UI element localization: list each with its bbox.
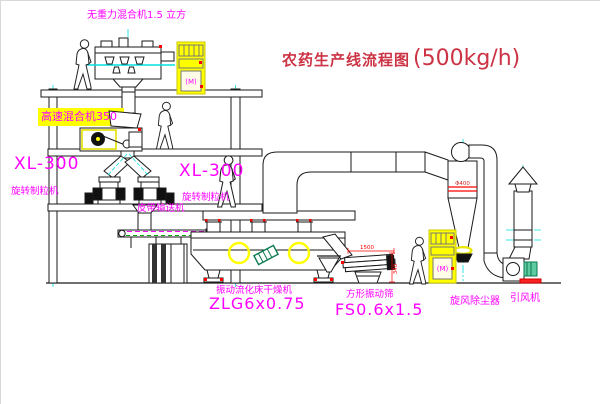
- conveyor-support-frame: [149, 244, 187, 283]
- gravity-free-mixer: [87, 38, 175, 113]
- sieve-height-dim-text: 340: [393, 263, 399, 274]
- exhaust-duct: [263, 152, 448, 213]
- control-cabinet-top: (M): [177, 42, 205, 94]
- cyclone-inlet-taper: [425, 152, 448, 180]
- fan-outlet-transition: [509, 247, 531, 259]
- sieve-length-dim-text: 1500: [360, 245, 374, 251]
- top-slab: [41, 90, 262, 97]
- label-granulator-left-model: XL-300: [14, 156, 79, 173]
- control-cabinet-right: (M): [429, 230, 456, 283]
- cyclone-top-elbow: [452, 143, 471, 162]
- induced-draft-fan: [503, 258, 541, 283]
- granulator-right: [134, 182, 174, 204]
- person-near-sieve: [409, 237, 425, 284]
- person-mid-floor: [156, 102, 172, 149]
- cyclone-discharge-valve: [454, 254, 472, 262]
- label-gravity-free-mixer: 无重力混合机1.5 立方: [87, 11, 186, 21]
- fan-base: [520, 279, 541, 283]
- label-sieve-model: FS0.6x1.5: [335, 302, 423, 318]
- label-sieve-name: 方形振动筛: [346, 290, 394, 300]
- drawing-title: 农药生产线流程图 (500kg/h): [282, 46, 520, 71]
- granulator-left: [85, 182, 125, 204]
- label-cyclone: 旋风除尘器: [450, 297, 500, 307]
- stack-cap-arrow: [509, 167, 537, 184]
- label-belt-conveyor: 皮带输送机: [137, 204, 185, 214]
- cyclone-diameter-text: Φ400: [455, 181, 470, 187]
- drawing-canvas: (M): [0, 0, 600, 404]
- cyclone-discharge-ring: [455, 247, 472, 254]
- title-chinese: 农药生产线流程图: [282, 49, 410, 70]
- label-dryer-model: ZLG6x0.75: [209, 296, 306, 312]
- label-high-speed-mixer: 高速混合机350: [41, 111, 117, 122]
- label-granulator-mid-model: XL-300: [179, 163, 244, 180]
- exhaust-stack: [509, 167, 537, 259]
- cabinet-mark: (M): [185, 78, 197, 86]
- title-capacity: (500kg/h): [413, 46, 520, 71]
- square-vibrating-sieve: 1500 340: [341, 245, 399, 283]
- label-granulator-mid-name: 旋转制粒机: [182, 193, 230, 203]
- label-fan: 引风机: [510, 294, 540, 304]
- cabinet-mark: (M): [437, 265, 449, 273]
- person-top-floor: [74, 40, 91, 89]
- sieve-base: [355, 272, 381, 283]
- fluid-bed-dryer: [191, 211, 355, 282]
- label-granulator-left-name: 旋转制粒机: [11, 187, 59, 197]
